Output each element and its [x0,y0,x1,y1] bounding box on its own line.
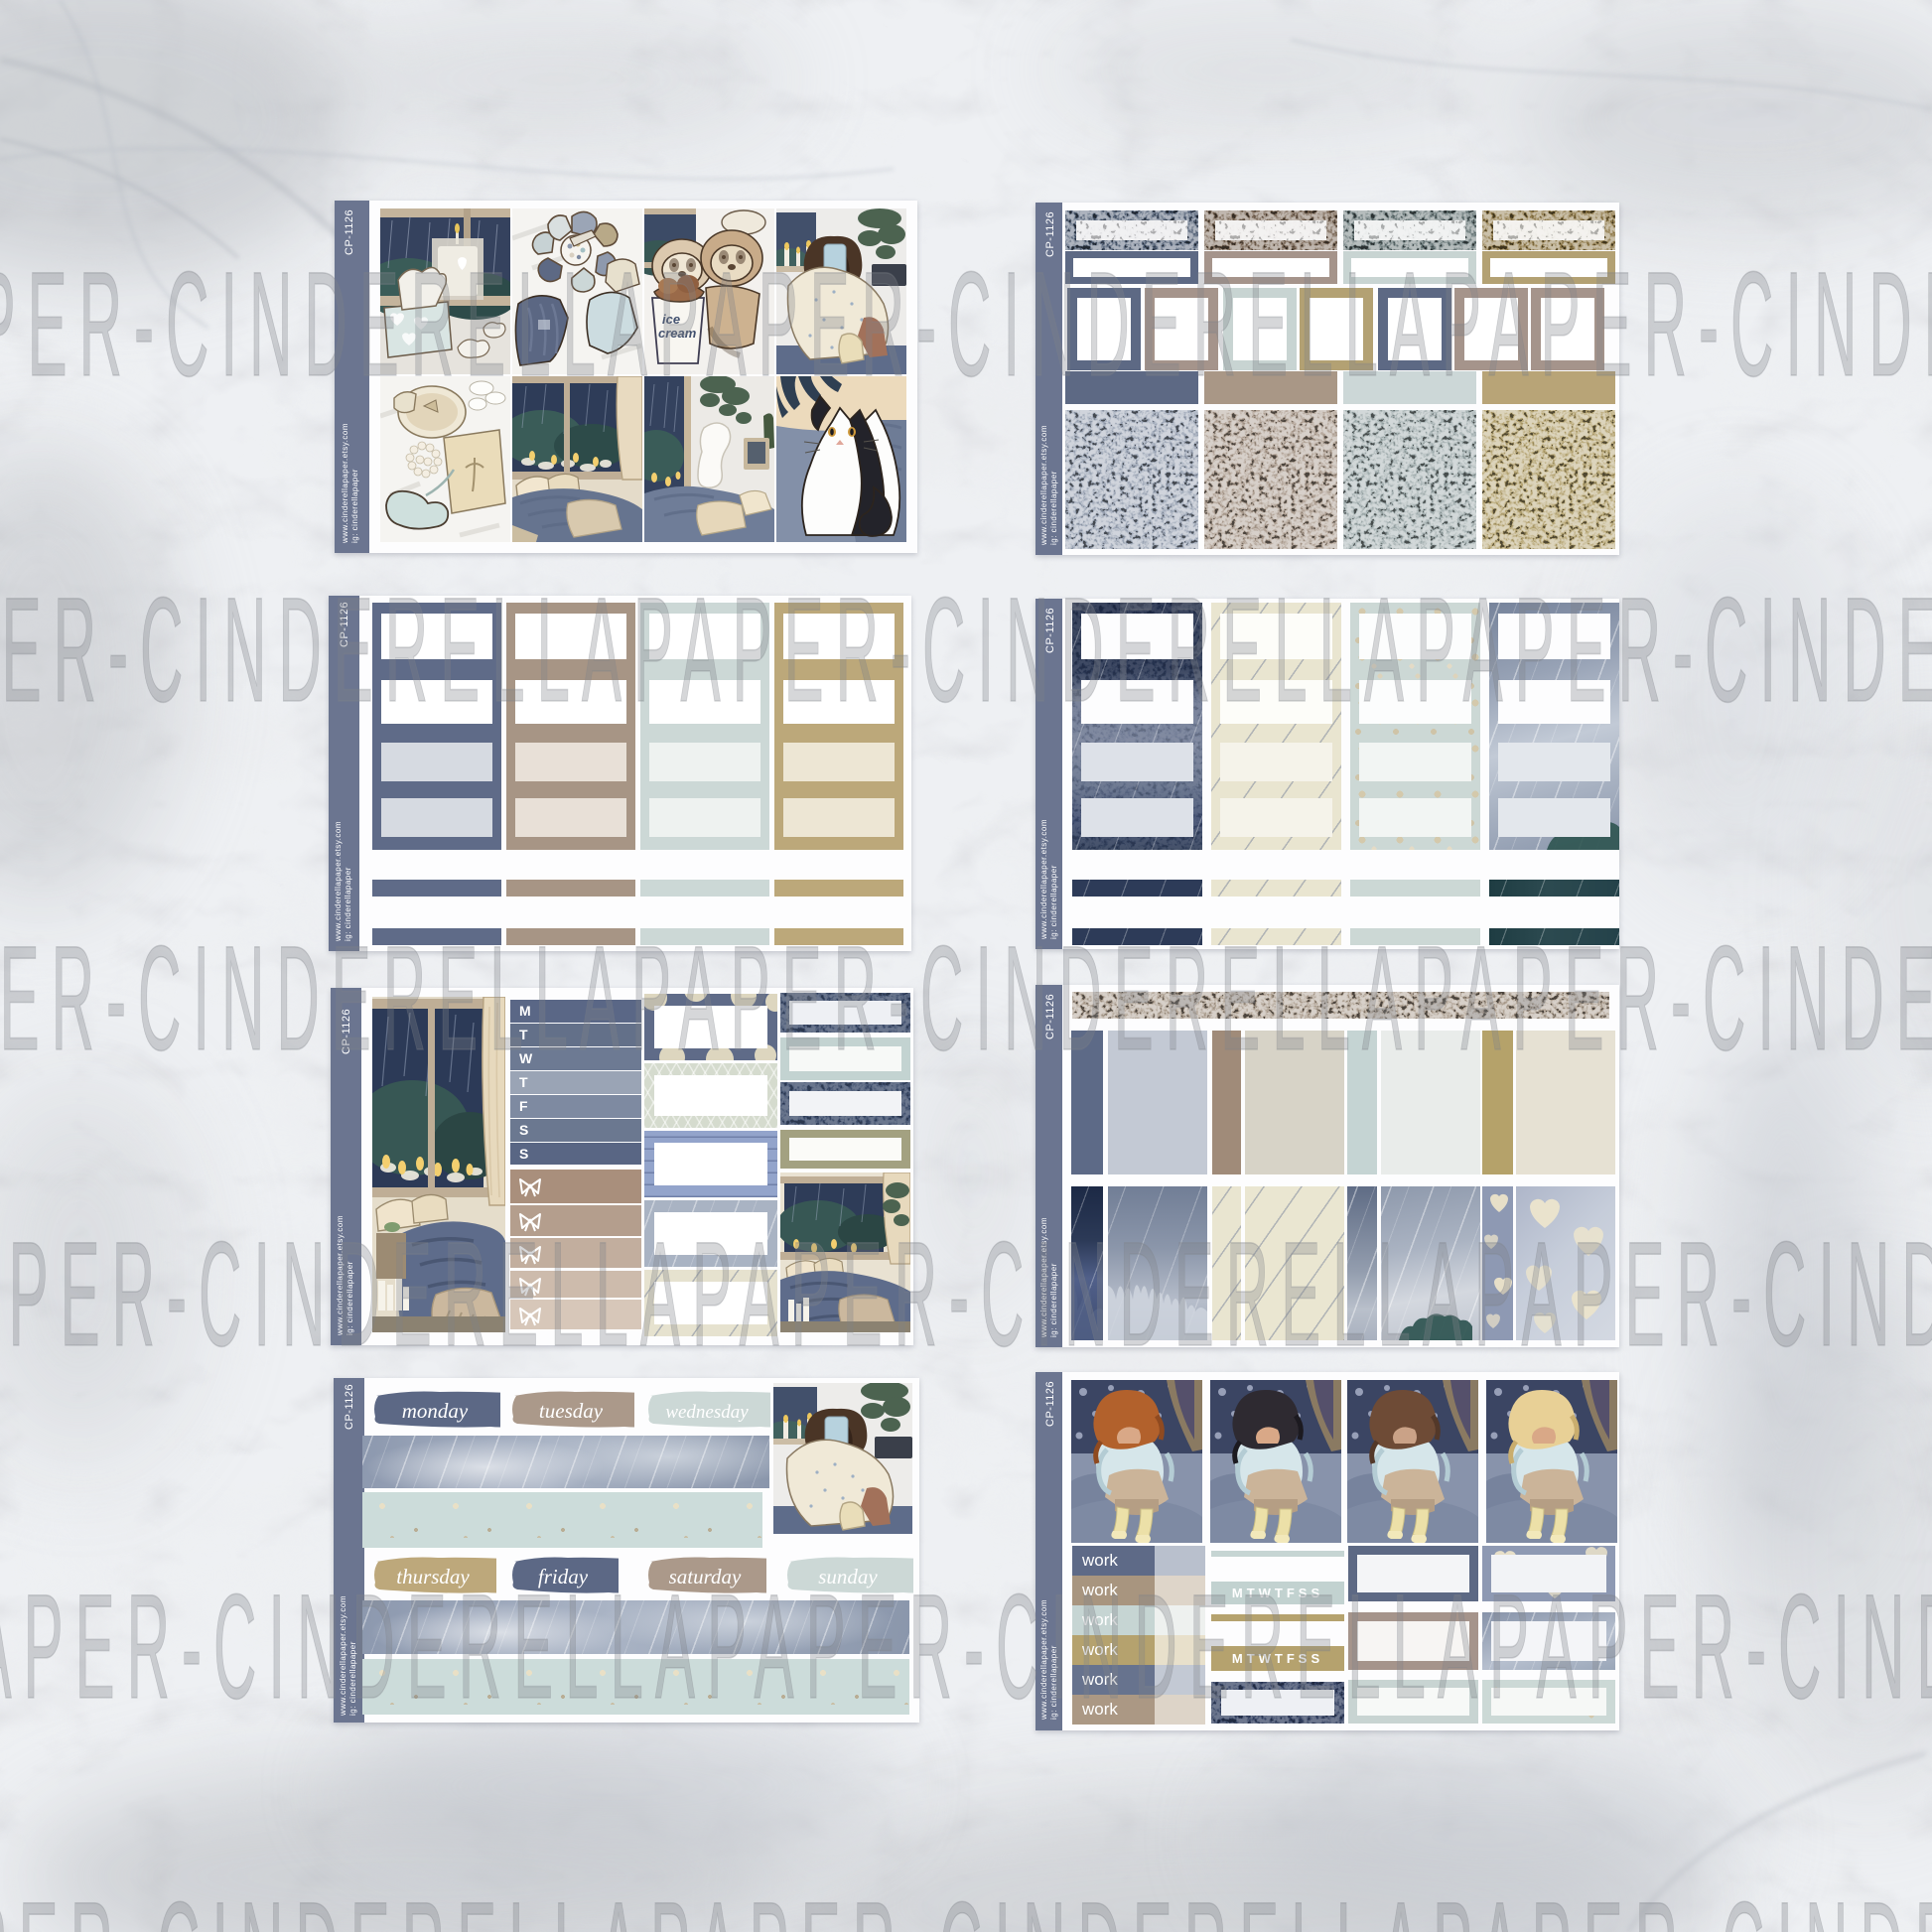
svg-text:CINDERELLAPAPER-CINDERELLAPAPE: CINDERELLAPAPER-CINDERELLAPAPER-CINDEREL… [0,1870,1932,1932]
svg-text:CINDERELLAPAPER-CINDERELLAPAPE: CINDERELLAPAPER-CINDERELLAPAPER-CINDEREL… [0,914,1932,1081]
svg-text:CINDERELLAPAPER-CINDERELLAPAPE: CINDERELLAPAPER-CINDERELLAPAPER-CINDEREL… [0,566,1932,733]
svg-text:CINDERELLAPAPER-CINDERELLAPAPE: CINDERELLAPAPER-CINDERELLAPAPER-CINDEREL… [0,240,1932,407]
svg-text:CINDERELLAPAPER-CINDERELLAPAPE: CINDERELLAPAPER-CINDERELLAPAPER-CINDEREL… [0,1210,1932,1377]
svg-text:CINDERELLAPAPER-CINDERELLAPAPE: CINDERELLAPAPER-CINDERELLAPAPER-CINDEREL… [0,1563,1932,1729]
